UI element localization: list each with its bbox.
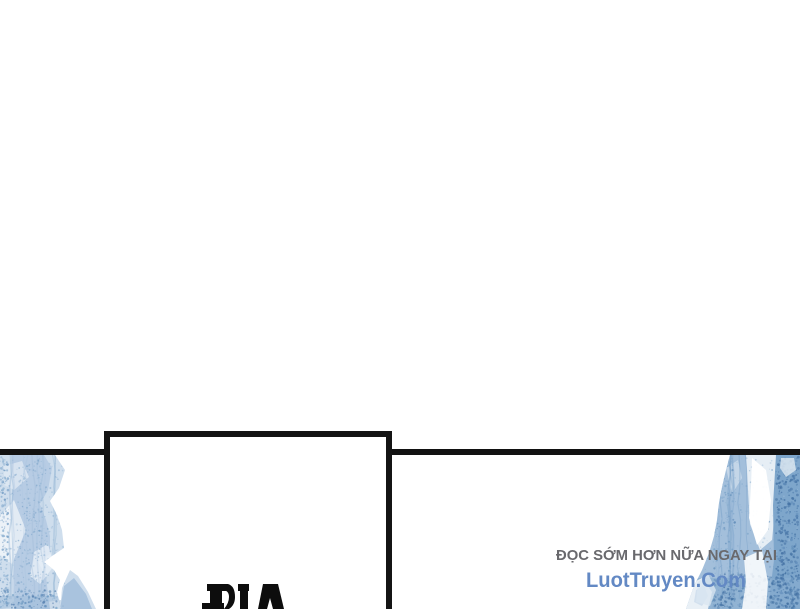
- svg-text:ĐỌC SỚM HƠN NỮA NGAY TẠI: ĐỌC SỚM HƠN NỮA NGAY TẠI: [556, 546, 777, 564]
- svg-text:LuotTruyen.Com: LuotTruyen.Com: [586, 569, 746, 592]
